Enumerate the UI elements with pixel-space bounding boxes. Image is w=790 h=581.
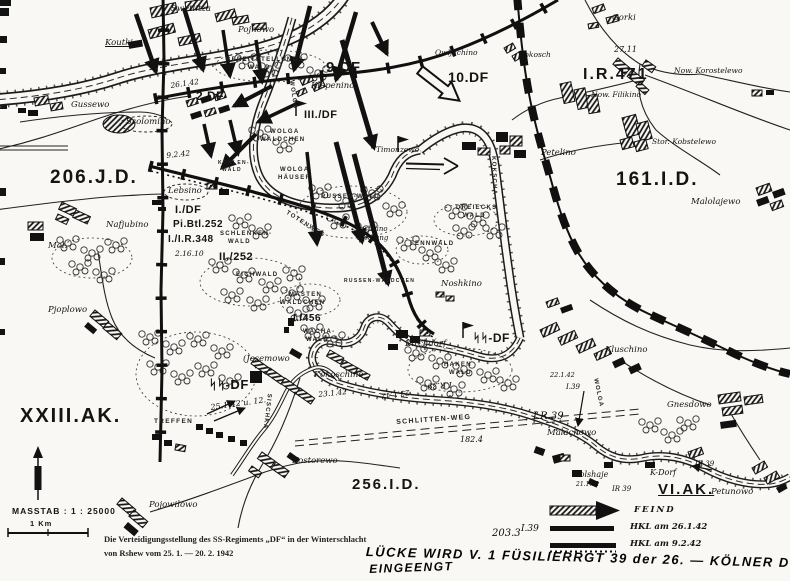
scan-artifacts	[0, 0, 11, 335]
places-ssolomino: Ssolomino	[126, 118, 171, 127]
annotations-ir-39: IR 39	[695, 461, 714, 468]
annotations-2-16-10: 2.16.10	[175, 250, 204, 258]
places-malolajewo: Malolajewo	[691, 198, 740, 207]
terrain-dreiecks: DREIECKS	[456, 205, 497, 211]
historical-military-map: 206.J.D.161.I.D.I.R.471XXIII.AK.256.I.D.…	[0, 0, 790, 581]
annotations-i-r-39: I.R.39	[427, 380, 452, 390]
terrain-wald: WALD	[228, 239, 251, 245]
own-units-df: ᛋᛋ-DF	[473, 332, 510, 344]
places-koutki: Koutki	[105, 39, 133, 48]
terrain-kohlen: KOHLEN-	[218, 161, 250, 166]
places-petelino: Petelino	[541, 149, 576, 158]
scale-bar	[8, 528, 88, 537]
places-swetlitza: Swetlitza	[171, 5, 211, 14]
places-now-filikino: Now. Filikino	[591, 91, 641, 99]
own-units-i-df: I./DF	[175, 205, 201, 216]
own-units-i-i-r-348: I./I.R.348	[168, 235, 214, 245]
breakout-arrow-east	[406, 158, 458, 174]
scale-bar-label: 1 Km	[30, 519, 52, 528]
annotations-i-39: I.39	[566, 384, 580, 391]
places-lebsino: Lebsino	[168, 187, 202, 196]
terrain-treffen: TREFFEN	[154, 419, 193, 426]
formations-256-i-d: 256.I.D.	[352, 477, 421, 492]
legend-label-hkl-9-2-42: HKL am 9.2.42	[630, 539, 701, 549]
terrain-häuser: HÄUSER	[278, 175, 311, 181]
places-kokosch: Kokosch	[519, 51, 551, 59]
annotations-i-r-39: I.R.39	[533, 412, 564, 422]
terrain-bereitstellungs: BEREITSTELLUNGS-	[226, 57, 307, 63]
places-noshkino: Noshkino	[441, 280, 482, 289]
annotations-i-39: I.39	[521, 525, 539, 534]
places-gussewo: Gussewo	[71, 101, 109, 110]
places-pojnowo: Pojnowo	[238, 26, 274, 35]
own-units-pi-btl-252: Pi.Btl.252	[173, 220, 223, 230]
places-mol: Mol.-	[48, 242, 70, 251]
places-klepenino: Klepenino	[311, 82, 354, 91]
annotations-ir-39: IR 39	[612, 486, 631, 493]
terrain-wacha: WACHA-	[303, 329, 335, 335]
terrain-wäldchen: WÄLDCHEN	[260, 137, 305, 143]
hand-notes-eingeengt: EINGEENGT	[369, 560, 454, 575]
terrain-wald: WALD	[222, 168, 242, 173]
north-arrow	[33, 446, 43, 500]
map-caption-line2: von Rshew vom 25. 1. — 20. 2. 1942	[104, 548, 233, 558]
legend-enemy-arrow-symbol	[550, 501, 620, 520]
formations-161-i-d: 161.I.D.	[616, 170, 699, 189]
annotations-27-11: 27.11	[614, 46, 637, 54]
forests	[52, 50, 699, 443]
places-kirchdorf: Kirchdorf	[405, 340, 446, 349]
annotations-21-1-42: 21.1.42	[576, 482, 599, 488]
annotations-182-4: 182.4	[460, 436, 483, 444]
map-caption-line1: Die Verteidigungsstellung des SS-Regimen…	[104, 534, 366, 544]
places-now-korostelewo: Now. Korostelewo	[674, 67, 742, 75]
annotations-203-3: 203.3	[492, 529, 521, 539]
terrain-wäldchen: WÄLDCHEN	[280, 300, 325, 306]
places-malachowo: Malachowo	[547, 429, 596, 438]
terrain-wald: WALD	[449, 370, 472, 376]
terrain-eichwald: EICHWALD	[236, 272, 278, 278]
places-gnesdowo: Gnesdowo	[667, 401, 712, 410]
formations-xxiii-ak: XXIII.AK.	[20, 406, 121, 426]
terrain-russen-wald: RUSSEN-WALD	[321, 194, 380, 200]
terrain-russen-wäldchen: RUSSEN-WÄLDCHEN	[344, 279, 415, 284]
legend-label-hkl-26-1-42: HKL am 26.1.42	[630, 522, 707, 532]
legend-symbols	[550, 501, 620, 552]
places-pojowilowo: Pojowilowo	[149, 501, 197, 510]
terrain-wald: WALD	[463, 213, 486, 219]
terrain-wald: WALD	[306, 337, 329, 343]
annotations-22-1-42: 22.1.42	[550, 372, 575, 379]
own-units-iii-df: III./DF	[304, 110, 337, 121]
places-nafjubino: Nafjubino	[106, 221, 149, 230]
own-units-10-df: 10.DF	[448, 70, 489, 84]
formations-i-r-471: I.R.471	[583, 67, 649, 83]
places-kokoschino: Kokoschino	[314, 371, 363, 380]
terrain-wolga: WOLGA	[270, 129, 300, 135]
places-kostorewo: Kostorewo	[292, 457, 338, 466]
places-noshkino: Noshkino	[354, 226, 388, 233]
scale-label: MASSTAB : 1 : 25000	[12, 506, 116, 516]
terrain-masten: MASTEN	[289, 292, 322, 298]
terrain-haken: HAKEN	[444, 362, 472, 368]
formations-206-j-d: 206.J.D.	[50, 168, 138, 187]
own-units-2-df: 2.DF	[196, 90, 224, 102]
terrain-fennwald: FENNWALD	[410, 241, 454, 247]
places-siedlung: Siedlung	[357, 235, 388, 242]
formations-vi-ak: VI.AK.	[658, 482, 714, 497]
own-units-9-df: 9.DF	[326, 60, 361, 75]
legend-label-feind: FEIND	[634, 505, 676, 515]
places-jesemowo: (Jesemowo	[243, 355, 290, 364]
terrain-schlenken: SCHLENKEN-	[220, 231, 272, 237]
places-kluschino: Kluschino	[605, 346, 647, 355]
terrain-wald: WALD	[248, 65, 271, 71]
places-wolshaje: Wolshaje	[572, 471, 608, 479]
annotations-k-dorf: K-Dorf	[650, 469, 676, 477]
places-owljachino: Owljachino	[435, 49, 478, 57]
places-petunowo: Petunowo	[711, 488, 753, 497]
own-units-ii-252: II./252	[219, 252, 253, 263]
own-units-i-456: I./456	[293, 314, 321, 324]
places-stor-kobstelewo: Stor. Kobstelewo	[652, 138, 716, 146]
places-pjoplowo: Pjoplowo	[48, 306, 87, 315]
places-gorki: Gorki	[612, 14, 636, 23]
legend-hkl-solid-symbol	[550, 526, 614, 531]
places-timonzewo: Timonzewo	[376, 146, 419, 154]
terrain-wolga: WOLGA	[280, 167, 310, 173]
own-units-df: ᛋᛋ-DF	[209, 378, 249, 391]
